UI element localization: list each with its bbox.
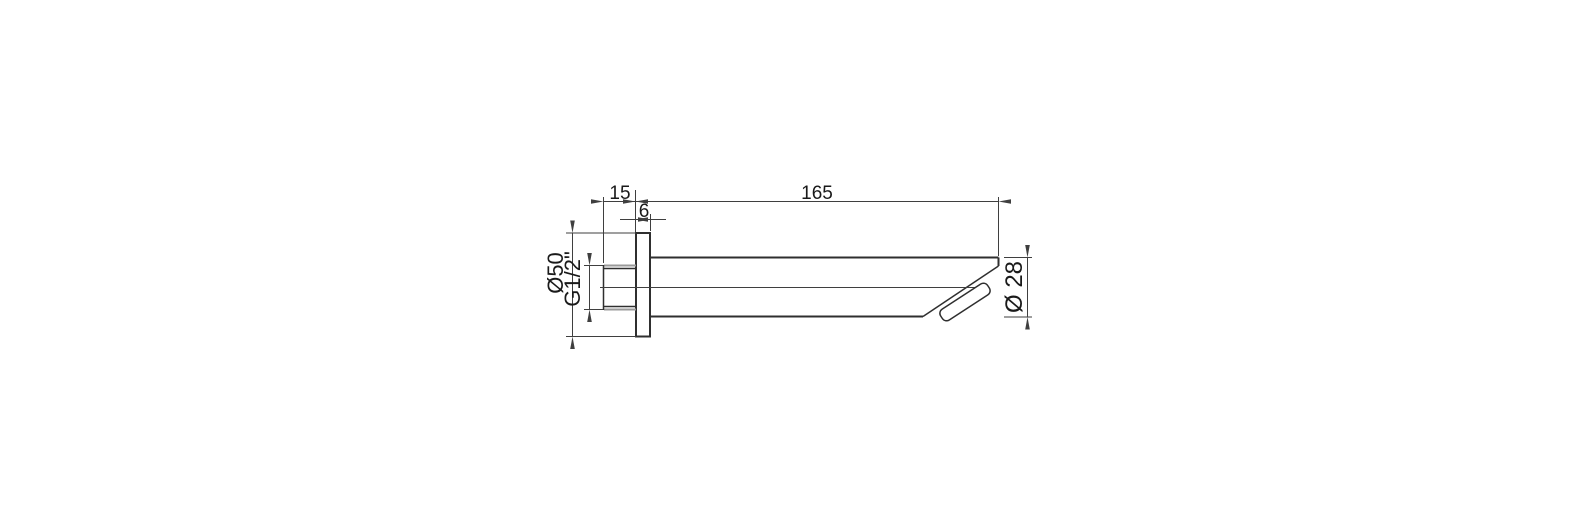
spout-body xyxy=(600,233,999,337)
dim-dia28: Ø 28 xyxy=(1001,258,1028,318)
dim-165: 165 xyxy=(636,183,999,204)
dim-label-165: 165 xyxy=(801,183,833,204)
dim-g12: G1/2" xyxy=(560,251,590,309)
dim-label-dia28: Ø 28 xyxy=(1001,261,1028,313)
dim-label-g12: G1/2" xyxy=(560,251,585,307)
drawing-canvas: 15 6 165 Ø50 G1/2" Ø 28 xyxy=(0,0,1584,528)
technical-drawing: 15 6 165 Ø50 G1/2" Ø 28 xyxy=(0,0,1584,528)
dim-label-15: 15 xyxy=(609,183,630,204)
wall-flange xyxy=(636,233,650,337)
dim-label-6: 6 xyxy=(639,201,650,222)
dim-6: 6 xyxy=(620,201,666,222)
dim-15: 15 xyxy=(604,183,636,204)
